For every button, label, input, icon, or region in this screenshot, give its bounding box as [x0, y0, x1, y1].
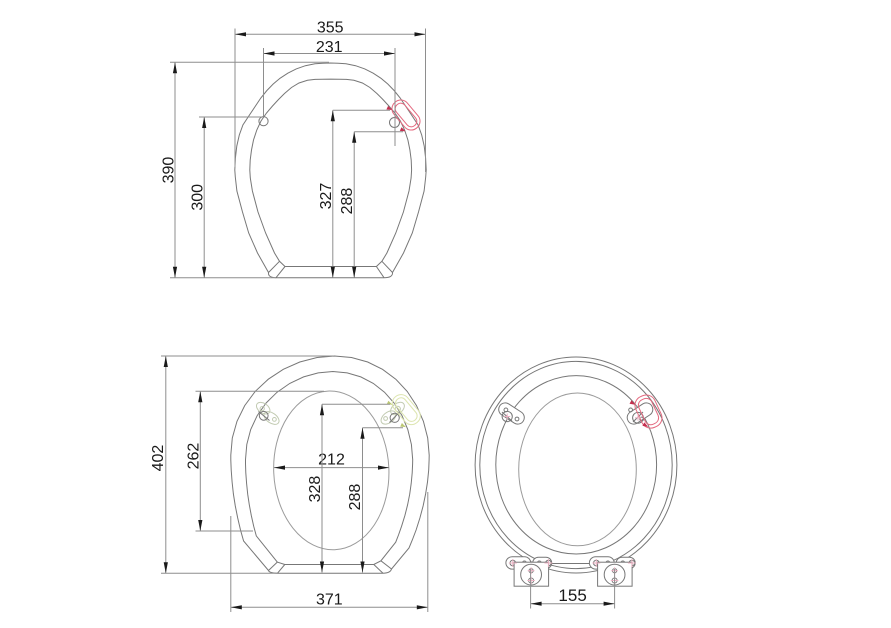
svg-text:328: 328 [307, 476, 324, 503]
svg-text:371: 371 [316, 592, 343, 609]
svg-text:355: 355 [317, 20, 344, 37]
svg-text:288: 288 [347, 484, 364, 511]
svg-text:262: 262 [185, 443, 202, 470]
svg-text:402: 402 [150, 445, 167, 472]
svg-text:300: 300 [190, 184, 207, 211]
svg-text:390: 390 [161, 157, 178, 184]
svg-text:288: 288 [339, 188, 356, 215]
svg-text:155: 155 [558, 586, 586, 605]
svg-text:231: 231 [316, 39, 343, 56]
svg-text:327: 327 [318, 183, 335, 210]
